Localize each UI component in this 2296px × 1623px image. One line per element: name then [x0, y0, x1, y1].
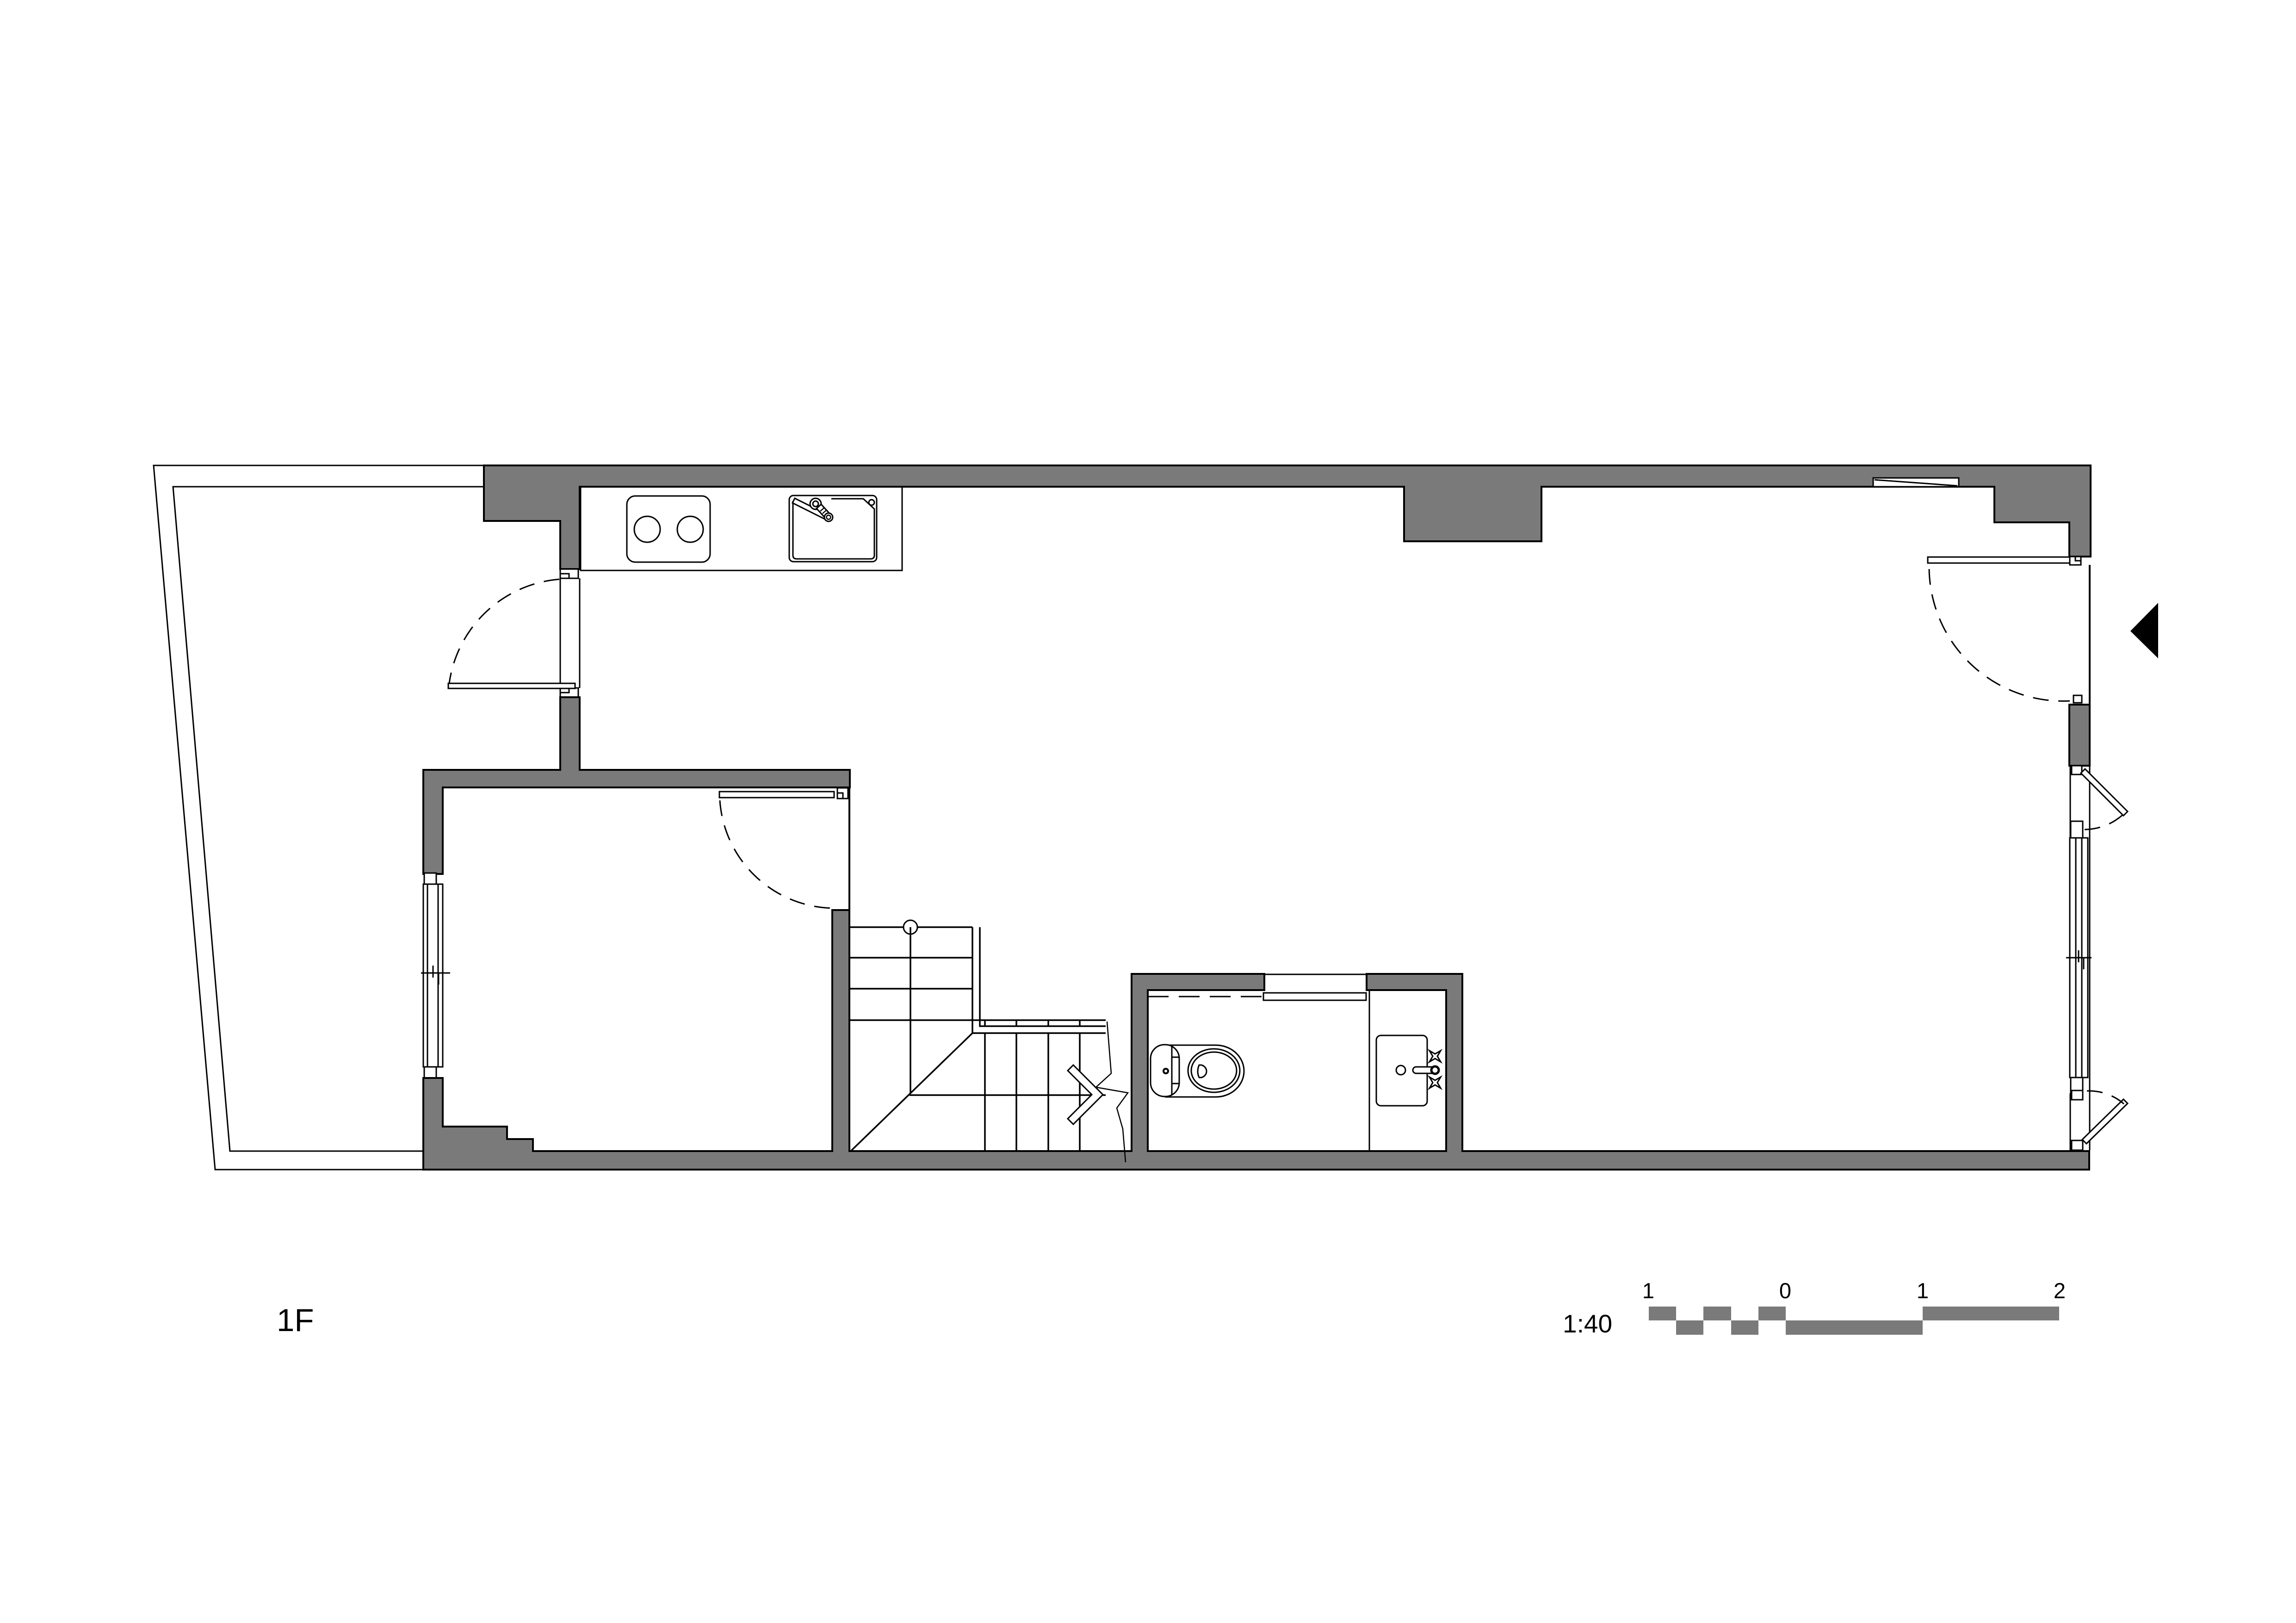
svg-text:1:40: 1:40	[1563, 1309, 1612, 1338]
svg-text:0: 0	[1779, 1278, 1791, 1303]
svg-text:1F: 1F	[277, 1302, 314, 1338]
svg-text:2: 2	[2054, 1278, 2066, 1303]
svg-text:1: 1	[1917, 1278, 1929, 1303]
svg-text:1: 1	[1642, 1278, 1654, 1303]
